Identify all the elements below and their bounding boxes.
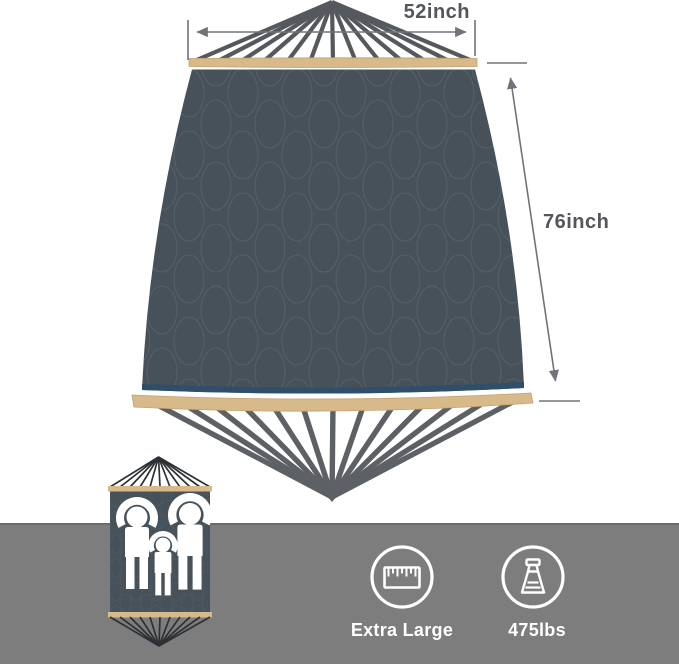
weight-icon: [500, 544, 566, 610]
thumb-top-bar: [108, 486, 212, 492]
thumb-top-ropes: [110, 457, 210, 487]
thumb-bottom-ropes: [110, 617, 210, 646]
weight-capacity-label: 475lbs: [462, 620, 612, 641]
hammock-fabric: [142, 70, 524, 394]
top-spreader-bar: [189, 58, 477, 68]
width-dimension-label: 52inch: [385, 1, 470, 24]
length-dimension-label: 76inch: [543, 211, 633, 234]
size-label: Extra Large: [327, 620, 477, 641]
ruler-icon: [369, 544, 435, 610]
family-capacity-icon: [95, 450, 225, 650]
product-dimension-diagram: 52inch 76inch: [0, 0, 679, 664]
thumb-bottom-bar: [108, 612, 212, 618]
